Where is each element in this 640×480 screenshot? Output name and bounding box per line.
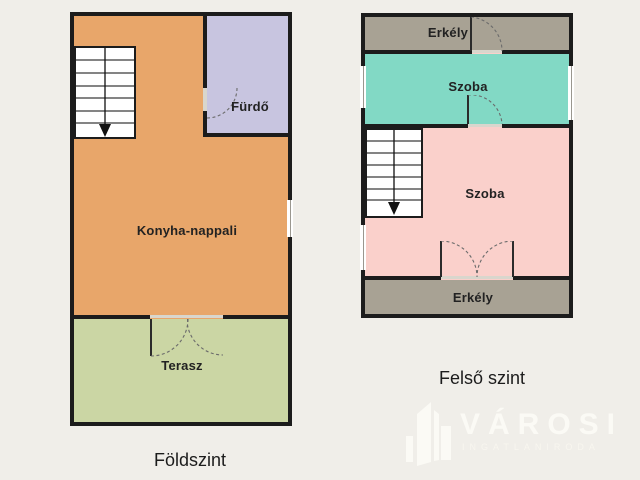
balcony-bottom-label: Erkély	[423, 290, 523, 305]
stairs-upper	[365, 128, 423, 218]
stairs-treads-icon	[367, 130, 421, 216]
agency-logo: VÁROSI INGATLANIRODA	[406, 398, 626, 468]
balcony-door-arc-right-icon	[477, 241, 514, 278]
upper-floor-caption: Felső szint	[402, 368, 562, 389]
bathroom-wall-bottom	[203, 133, 288, 137]
rooms-divider-door-arc-icon	[468, 95, 503, 125]
terrace-door-arc-right-icon	[187, 319, 224, 356]
room-upper-label: Szoba	[418, 79, 518, 94]
bathroom-wall-left-upper	[203, 16, 207, 88]
room-lower-window-left	[360, 225, 366, 270]
balcony-top-label: Erkély	[398, 25, 498, 40]
terrace-label: Terasz	[122, 358, 242, 373]
agency-brand-text: VÁROSI	[460, 408, 623, 442]
bathroom-label: Fürdő	[210, 99, 290, 114]
room-upper-window-right	[568, 66, 574, 120]
rooms-divider-wall-right-segment	[502, 124, 569, 128]
stairs-ground	[74, 46, 136, 139]
room-upper-window-left	[360, 66, 366, 108]
balcony-door-arc-left-icon	[441, 241, 478, 278]
stairs-treads-icon	[76, 48, 134, 137]
agency-subtitle-text: INGATLANIRODA	[462, 442, 600, 452]
kitchen-window	[287, 200, 293, 237]
ground-floor-caption: Földszint	[120, 450, 260, 471]
stairs-down-arrow-icon	[99, 124, 111, 137]
terrace-door-opening	[150, 315, 223, 318]
terrace-door-arc-left-icon	[151, 319, 189, 357]
building-logo-icon	[406, 400, 452, 466]
stairs-down-arrow-icon	[388, 202, 400, 215]
kitchen-living-label: Konyha-nappali	[107, 223, 267, 238]
room-lower-label: Szoba	[435, 186, 535, 201]
